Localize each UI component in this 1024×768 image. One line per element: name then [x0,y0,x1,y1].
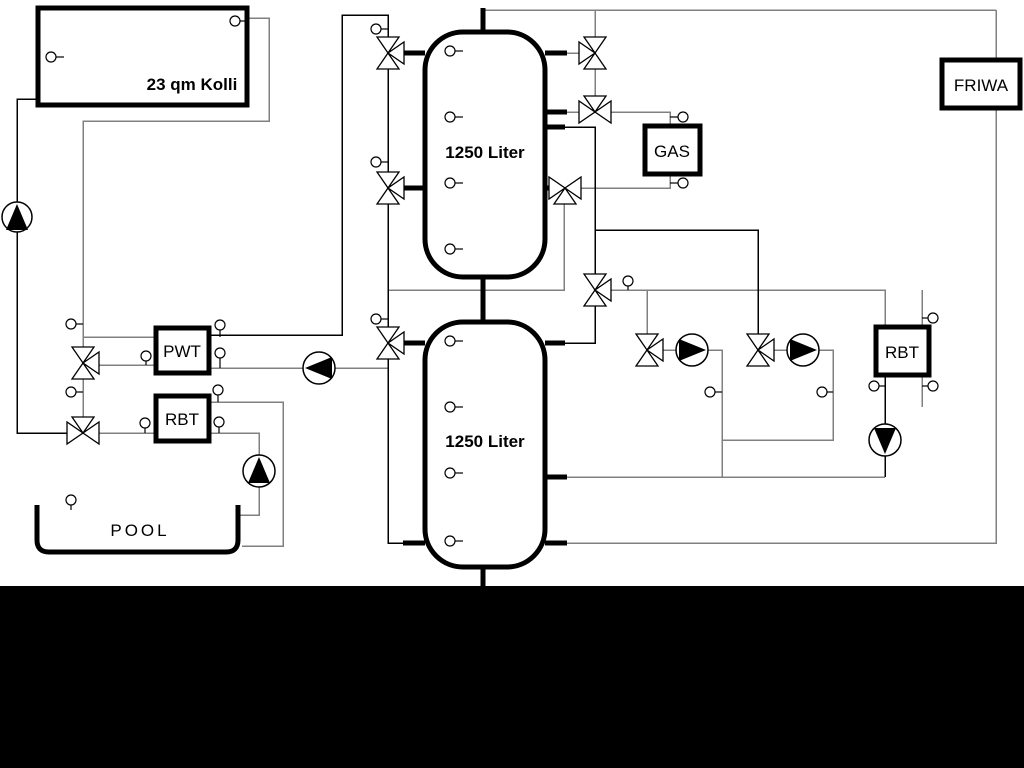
buffer-tank-1-label: 1250 Liter [445,143,525,162]
rbt-right-label: RBT [885,343,919,362]
solar-collector-label: 23 qm Kolli [147,75,238,94]
rbt-right-heat-exchanger: RBT [876,327,929,375]
friwa-label: FRIWA [954,76,1009,95]
pool-label: POOL [110,521,169,540]
solar-pump-icon [2,202,32,232]
rbt-pool-label: RBT [165,410,199,429]
buffer-tank-2-label: 1250 Liter [445,432,525,451]
rbt-pump-icon [869,424,901,456]
pwt-heat-exchanger: PWT [156,328,209,373]
friwa-station: FRIWA [942,60,1020,108]
solar-collector: 23 qm Kolli [38,8,247,105]
heating-pump-2-icon [787,334,819,366]
heating-pump-1-icon [676,334,708,366]
bottom-black-band [0,586,1024,768]
buffer-tank-1: 1250 Liter [425,32,545,277]
schematic-canvas: 23 qm Kolli 1250 Liter 1250 Liter PWT RB… [0,0,1024,768]
pwt-pump-icon [303,352,335,384]
buffer-tank-2: 1250 Liter [425,322,545,567]
pool-pump-icon [243,455,275,487]
rbt-pool-heat-exchanger: RBT [156,396,209,441]
gas-boiler: GAS [645,126,700,174]
pwt-label: PWT [163,342,201,361]
gas-label: GAS [654,142,690,161]
hydraulic-schematic: 23 qm Kolli 1250 Liter 1250 Liter PWT RB… [0,0,1024,768]
